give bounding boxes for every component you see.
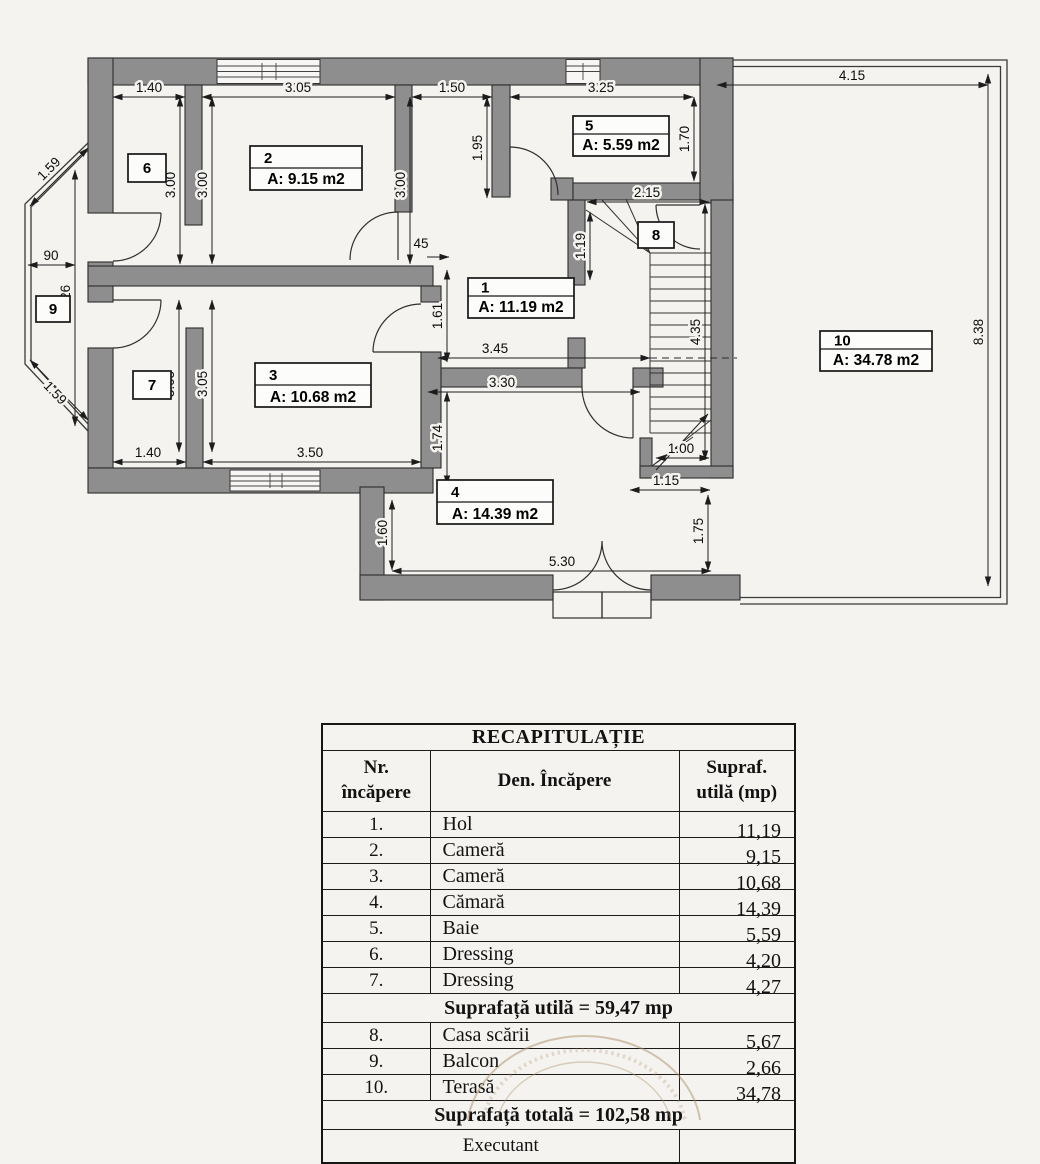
dim-label: 1.70 [677, 126, 692, 152]
dim-label: 8.38 [971, 319, 986, 345]
room-number: 6 [143, 160, 151, 177]
room-area: A: 5.59 m2 [582, 137, 660, 154]
room-number: 3 [269, 367, 277, 384]
recap-table-container: RECAPITULAȚIE Nr. încăpere Den. Încăpere… [321, 723, 794, 1164]
room-number: 4 [451, 484, 460, 501]
table-row: 7. Dressing 4,27 [322, 968, 795, 994]
table-row: 3. Cameră 10,68 [322, 864, 795, 890]
dim-label: 1.59 [41, 378, 70, 407]
table-row: 5. Baie 5,59 [322, 916, 795, 942]
table-footer-row: Executant [322, 1130, 795, 1164]
scanned-floor-plan-page: { "colors": { "wall_fill": "#8e8e8e", "l… [0, 0, 1040, 1120]
table-row: 9. Balcon 2,66 [322, 1049, 795, 1075]
floor-plan: 1.40 3.05 1.50 3.25 4.15 8.38 3.00 3.00 … [0, 0, 1040, 700]
dim-label: 1.95 [470, 135, 485, 161]
dim-label: 1.74 [430, 424, 445, 451]
room-label-7: 7 [133, 371, 171, 399]
room-label-8: 8 [638, 222, 674, 248]
table-title-row: RECAPITULAȚIE [322, 724, 795, 751]
room-label-5: 5 A: 5.59 m2 [573, 116, 669, 156]
room-label-4: 4 A: 14.39 m2 [437, 480, 553, 524]
room-number: 7 [148, 377, 156, 394]
subtotal-label: Suprafață utilă = 59,47 mp [322, 994, 795, 1023]
dim-label: 2.15 [634, 185, 660, 200]
dim-label: 4.15 [839, 68, 865, 83]
room-area: A: 9.15 m2 [267, 171, 345, 188]
table-title: RECAPITULAȚIE [322, 724, 795, 751]
dim-label: 1.50 [439, 80, 465, 95]
table-row: 10. Terasă 34,78 [322, 1075, 795, 1101]
dim-label: 1.40 [135, 445, 161, 460]
table-row: 6. Dressing 4,20 [322, 942, 795, 968]
dim-label: 1.40 [136, 80, 162, 95]
table-row: 1. Hol 11,19 [322, 812, 795, 838]
room-label-3: 3 A: 10.68 m2 [255, 363, 371, 407]
dim-label: 4.35 [688, 319, 703, 345]
room-area: A: 10.68 m2 [270, 389, 356, 406]
room-number: 8 [652, 227, 660, 244]
room-number: 2 [264, 150, 272, 167]
room-label-9: 9 [36, 296, 70, 322]
dim-label: 1.75 [691, 518, 706, 544]
recap-table: RECAPITULAȚIE Nr. încăpere Den. Încăpere… [321, 723, 796, 1164]
dim-label: 3.00 [393, 172, 408, 198]
dim-label: 3.45 [482, 341, 508, 356]
room-label-10: 10 A: 34.78 m2 [820, 331, 932, 371]
dim-label: 90 [43, 248, 58, 263]
table-header-row: Nr. încăpere Den. Încăpere Supraf. utilă… [322, 751, 795, 812]
dim-label: 45 [413, 236, 428, 251]
col-header-nr: Nr. încăpere [322, 751, 430, 812]
dim-label: 3.30 [489, 375, 515, 390]
room-label-1: 1 A: 11.19 m2 [468, 278, 574, 318]
room-label-2: 2 A: 9.15 m2 [250, 146, 362, 190]
dim-label: 3.05 [285, 80, 311, 95]
dim-label: 3.25 [588, 80, 614, 95]
table-row: 4. Cămară 14,39 [322, 890, 795, 916]
table-subtotal-row: Suprafață utilă = 59,47 mp [322, 994, 795, 1023]
room-number: 10 [834, 333, 851, 350]
room-area: A: 11.19 m2 [478, 299, 563, 316]
dim-label: 3.00 [195, 172, 210, 198]
dim-label: 5.30 [549, 554, 575, 569]
dim-label: 1.61 [430, 303, 445, 329]
room-number: 9 [49, 301, 57, 318]
col-header-den: Den. Încăpere [430, 751, 679, 812]
table-row: 8. Casa scării 5,67 [322, 1023, 795, 1049]
room-label-6: 6 [128, 154, 166, 182]
dim-label: 1.00 [668, 441, 694, 456]
table-row: 2. Cameră 9,15 [322, 838, 795, 864]
total-label: Suprafață totală = 102,58 mp [322, 1101, 795, 1130]
dim-label: 1.15 [653, 473, 679, 488]
col-header-supraf: Supraf. utilă (mp) [679, 751, 795, 812]
dim-label: 1.19 [573, 233, 588, 259]
room-number: 5 [585, 118, 593, 135]
room-area: A: 14.39 m2 [452, 506, 538, 523]
footer-label: Executant [322, 1130, 679, 1164]
table-total-row: Suprafață totală = 102,58 mp [322, 1101, 795, 1130]
dim-label: 3.05 [195, 371, 210, 397]
dim-label: 3.50 [297, 445, 323, 460]
dim-label: 1.60 [375, 520, 390, 546]
room-area: A: 34.78 m2 [833, 352, 919, 369]
room-number: 1 [481, 280, 489, 297]
